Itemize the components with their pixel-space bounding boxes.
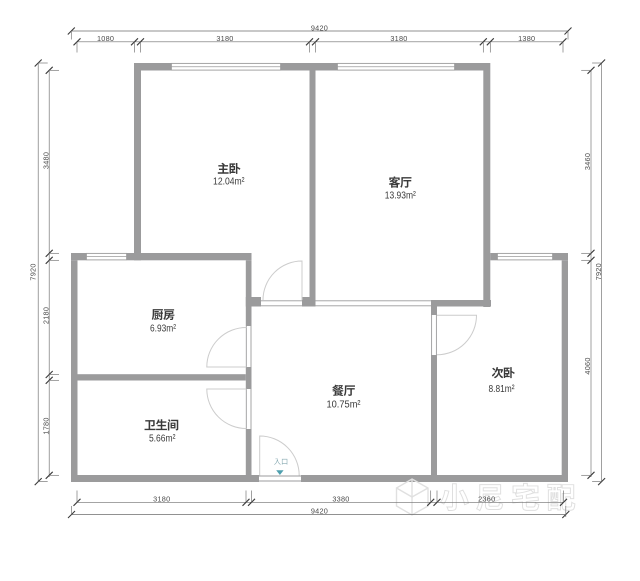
svg-text:12.04m²: 12.04m² (213, 177, 245, 188)
svg-text:3180: 3180 (153, 494, 170, 503)
svg-text:8.81m²: 8.81m² (489, 384, 516, 395)
svg-text:13.93m²: 13.93m² (385, 190, 417, 201)
svg-text:9420: 9420 (311, 507, 328, 516)
svg-text:4060: 4060 (583, 357, 592, 374)
svg-text:10.75m²: 10.75m² (327, 399, 362, 410)
svg-text:7920: 7920 (28, 263, 37, 280)
svg-text:7920: 7920 (594, 263, 603, 280)
svg-text:6.93m²: 6.93m² (150, 324, 177, 335)
svg-text:3380: 3380 (332, 494, 349, 503)
svg-text:1780: 1780 (42, 417, 51, 434)
svg-text:3460: 3460 (583, 153, 592, 170)
svg-text:9420: 9420 (311, 24, 328, 33)
svg-text:2360: 2360 (478, 494, 495, 503)
svg-text:3180: 3180 (390, 34, 407, 43)
svg-text:1080: 1080 (97, 34, 114, 43)
svg-text:2180: 2180 (42, 307, 51, 324)
svg-text:5.66m²: 5.66m² (149, 433, 176, 444)
svg-text:1380: 1380 (518, 34, 535, 43)
svg-text:3180: 3180 (216, 34, 233, 43)
svg-text:3480: 3480 (42, 152, 51, 169)
